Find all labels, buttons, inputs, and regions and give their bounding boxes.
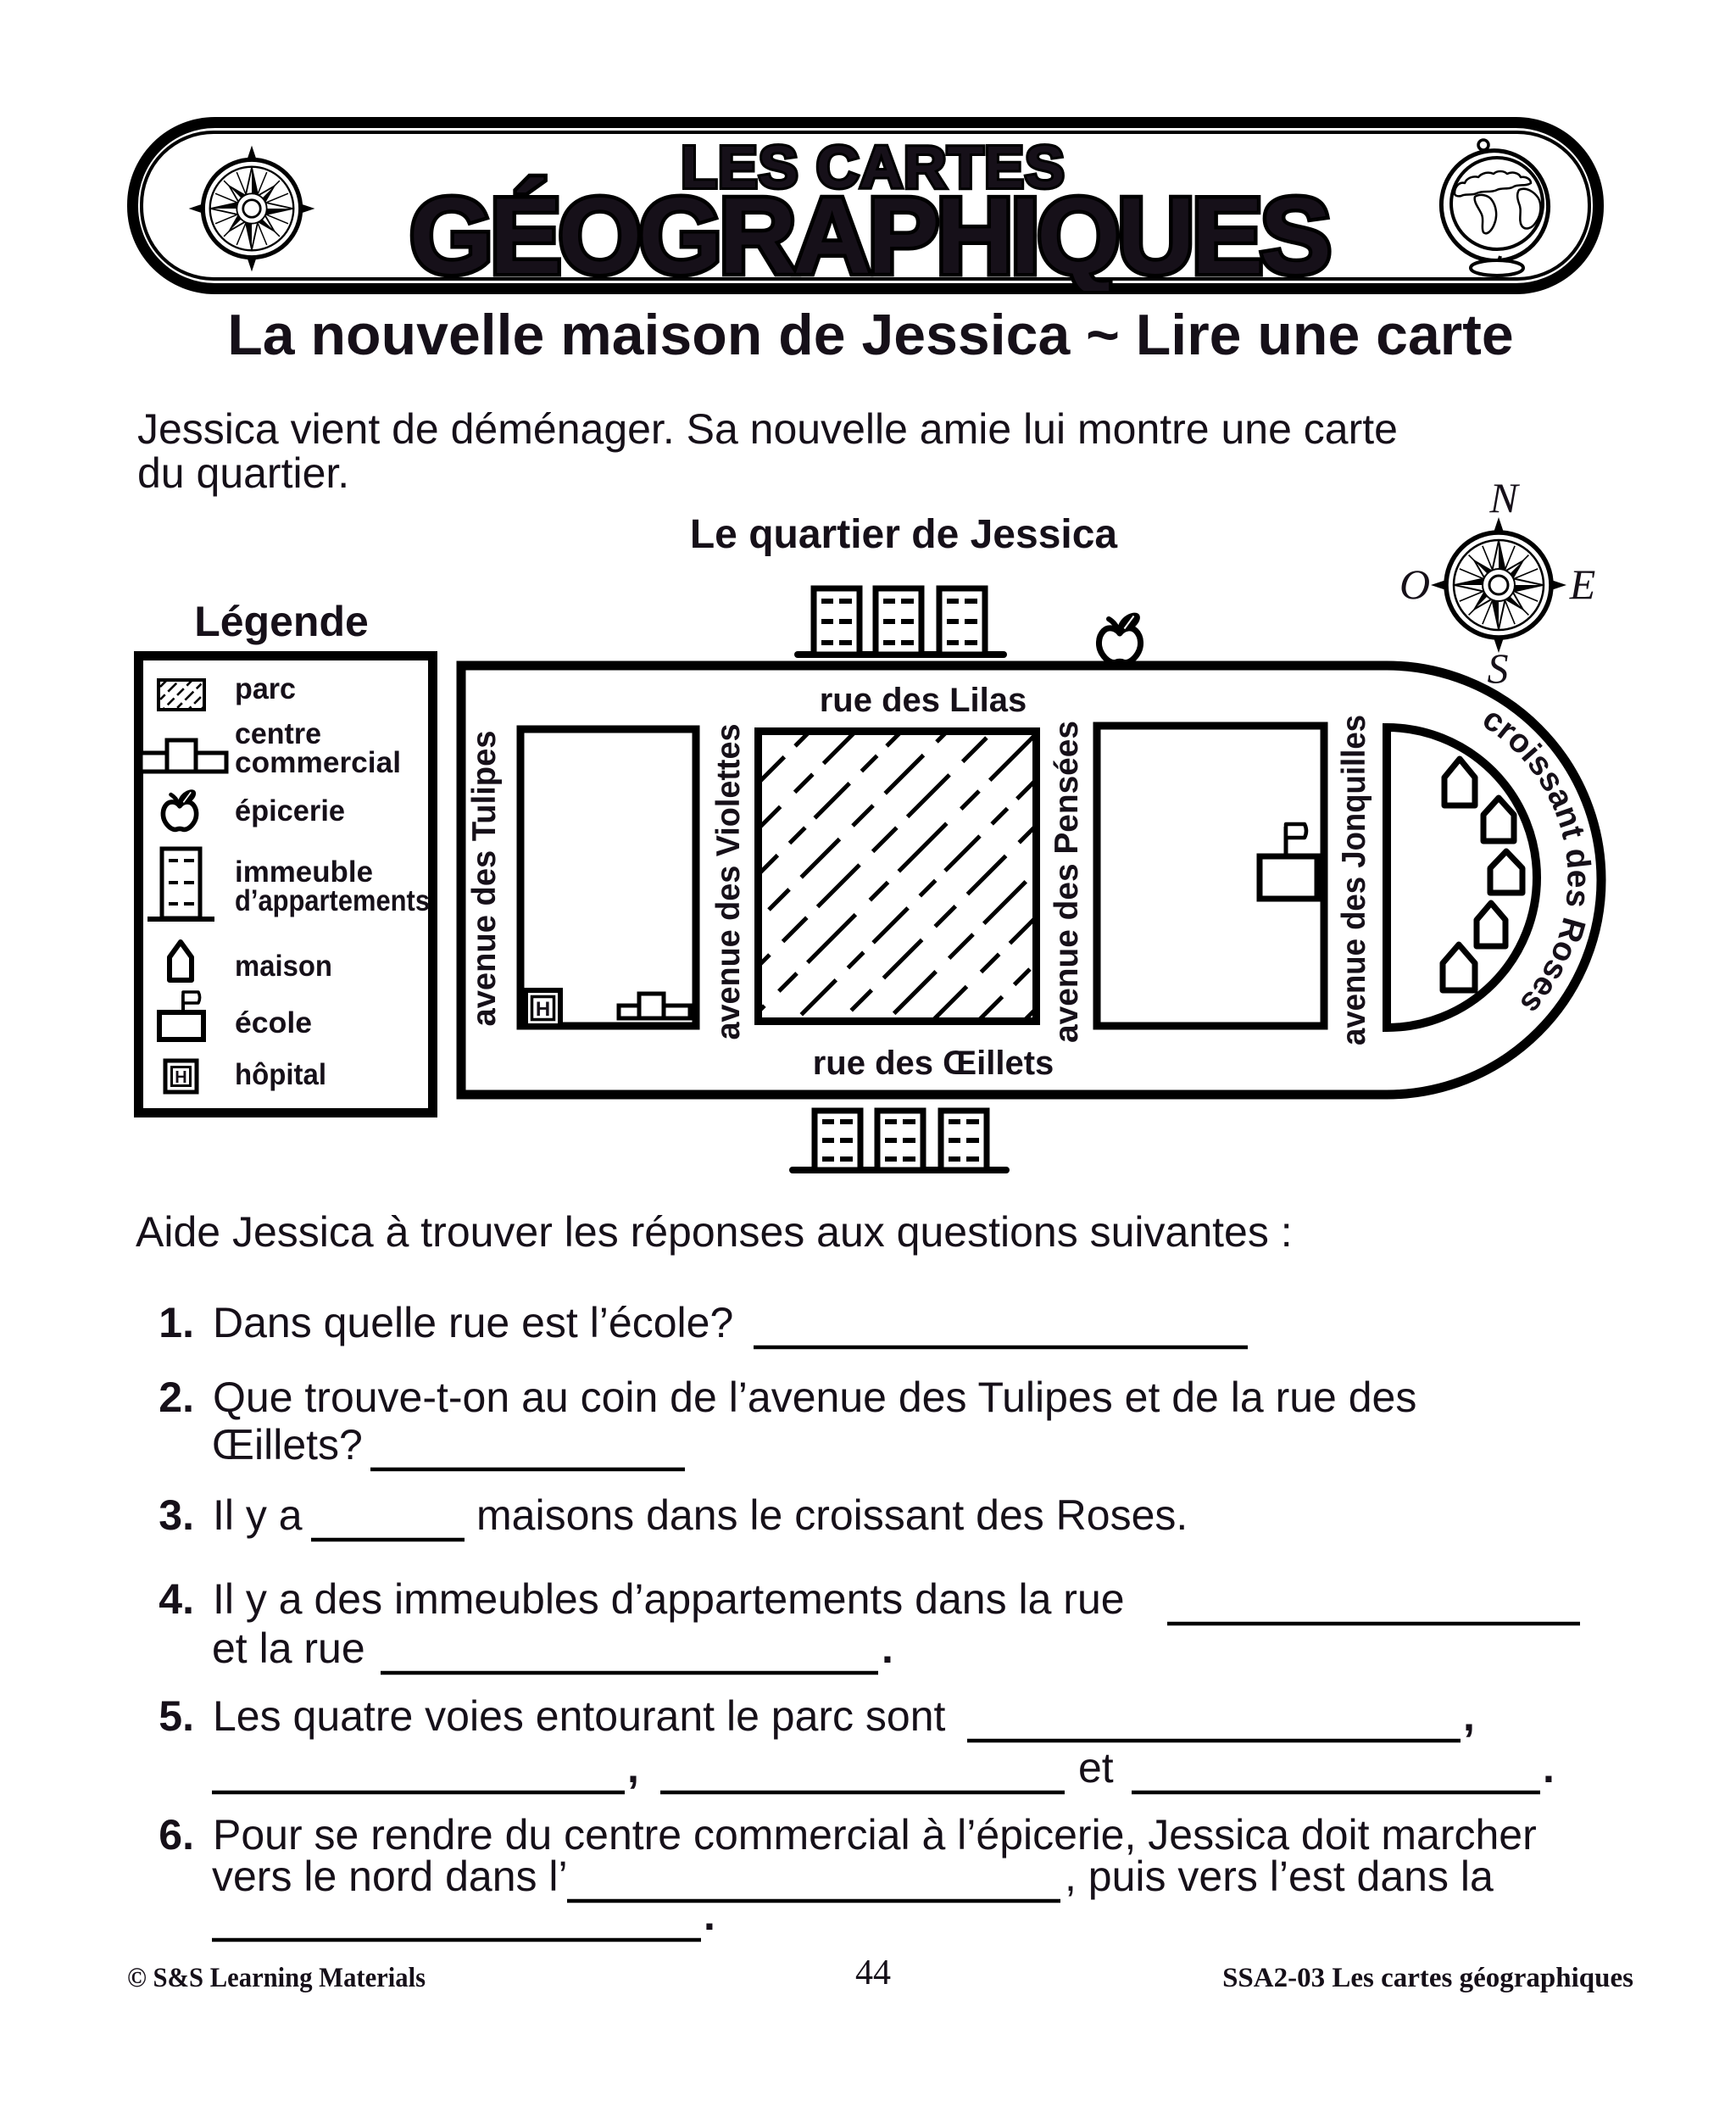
- svg-text:,: ,: [1463, 1692, 1475, 1740]
- svg-text:rue des Lilas: rue des Lilas: [820, 682, 1027, 719]
- svg-text:2.: 2.: [159, 1374, 194, 1421]
- svg-text:Aide Jessica à trouver les rép: Aide Jessica à trouver les réponses aux …: [136, 1208, 1293, 1256]
- svg-text:maison: maison: [235, 950, 332, 983]
- svg-text:44: 44: [855, 1953, 891, 1992]
- svg-text:.: .: [882, 1625, 893, 1672]
- svg-text:H: H: [175, 1068, 186, 1087]
- svg-text:Le quartier de Jessica: Le quartier de Jessica: [690, 512, 1118, 557]
- svg-text:6.: 6.: [159, 1811, 194, 1859]
- svg-text:O: O: [1399, 560, 1430, 608]
- svg-text:Que trouve-t-on au coin de l’a: Que trouve-t-on au coin de l’avenue des …: [213, 1374, 1416, 1421]
- svg-text:épicerie: épicerie: [235, 794, 345, 828]
- svg-text:,: ,: [627, 1744, 639, 1792]
- svg-text:N: N: [1488, 474, 1520, 521]
- svg-text:avenue des Tulipes: avenue des Tulipes: [466, 731, 503, 1027]
- svg-text:du quartier.: du quartier.: [137, 449, 349, 497]
- svg-text:d’appartements: d’appartements: [235, 884, 430, 917]
- svg-text:5.: 5.: [159, 1692, 194, 1740]
- svg-text:© S&S Learning Materials: © S&S Learning Materials: [127, 1963, 426, 1993]
- svg-text:et la rue: et la rue: [212, 1625, 365, 1672]
- svg-text:Légende: Légende: [194, 598, 369, 645]
- svg-text:H: H: [536, 998, 550, 1021]
- svg-text:hôpital: hôpital: [235, 1058, 326, 1091]
- svg-text:avenue des Violettes: avenue des Violettes: [710, 724, 747, 1040]
- svg-text:Les quatre voies entourant le: Les quatre voies entourant le parc sont: [213, 1692, 946, 1740]
- svg-text:, puis vers l’est dans la: , puis vers l’est dans la: [1065, 1853, 1494, 1900]
- svg-text:vers le nord dans l’: vers le nord dans l’: [212, 1853, 568, 1900]
- svg-text:SSA2-03 Les cartes géographiqu: SSA2-03 Les cartes géographiques: [1222, 1963, 1633, 1993]
- svg-text:E: E: [1569, 560, 1596, 608]
- svg-text:GÉOGRAPHIQUES: GÉOGRAPHIQUES: [409, 176, 1328, 296]
- svg-text:Pour se rendre du centre comme: Pour se rendre du centre commercial à l’…: [213, 1811, 1537, 1859]
- svg-text:Œillets?: Œillets?: [212, 1421, 363, 1468]
- svg-text:école: école: [235, 1006, 312, 1039]
- svg-text:Jessica vient de déménager. Sa: Jessica vient de déménager. Sa nouvelle …: [137, 405, 1398, 453]
- svg-text:3.: 3.: [159, 1491, 194, 1539]
- svg-text:La nouvelle maison de Jessica: La nouvelle maison de Jessica ~ Lire une…: [227, 303, 1513, 367]
- svg-text:Il y a: Il y a: [213, 1491, 303, 1539]
- svg-text:Il y a des immeubles d’apparte: Il y a des immeubles d’appartements dans…: [213, 1575, 1125, 1623]
- svg-text:1.: 1.: [159, 1299, 194, 1346]
- svg-text:.: .: [704, 1892, 715, 1939]
- svg-text:avenue des Jonquilles: avenue des Jonquilles: [1336, 715, 1372, 1045]
- svg-text:rue des Œillets: rue des Œillets: [813, 1045, 1054, 1082]
- svg-text:avenue des Pensées: avenue des Pensées: [1049, 721, 1085, 1043]
- svg-text:S: S: [1488, 644, 1509, 692]
- svg-text:.: .: [1543, 1744, 1555, 1792]
- svg-text:et: et: [1078, 1744, 1114, 1792]
- svg-text:parc: parc: [235, 672, 296, 705]
- svg-text:Dans quelle rue est l’école?: Dans quelle rue est l’école?: [213, 1299, 733, 1346]
- svg-text:commercial: commercial: [235, 746, 401, 779]
- svg-text:maisons dans le croissant des: maisons dans le croissant des Roses.: [476, 1491, 1188, 1539]
- svg-text:4.: 4.: [159, 1575, 194, 1623]
